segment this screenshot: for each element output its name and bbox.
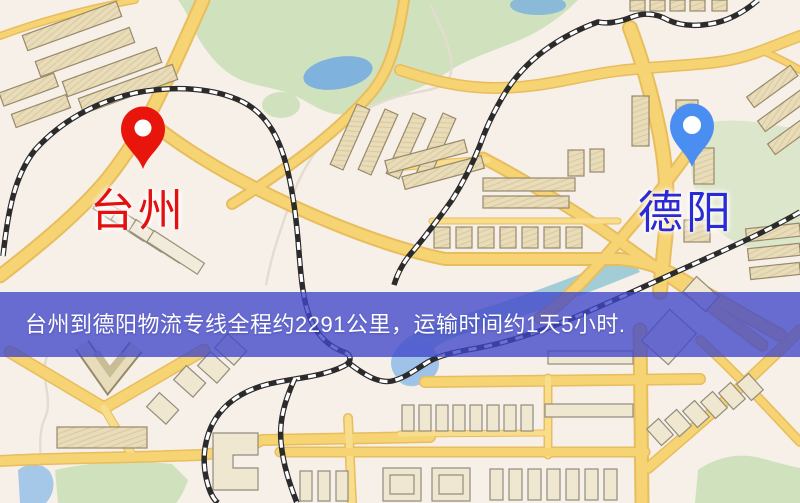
route-info-text: 台州到德阳物流专线全程约2291公里，运输时间约1天5小时. xyxy=(0,292,800,357)
origin-pin-icon[interactable] xyxy=(120,106,166,170)
origin-city-label: 台州 xyxy=(90,174,186,239)
route-info-banner: 台州到德阳物流专线全程约2291公里，运输时间约1天5小时. xyxy=(0,292,800,357)
destination-city-label: 德阳 xyxy=(638,176,734,241)
destination-pin-icon[interactable] xyxy=(669,103,715,169)
map-canvas: 台州到德阳物流专线全程约2291公里，运输时间约1天5小时. 台州 德阳 xyxy=(0,0,800,503)
map-image xyxy=(0,0,800,503)
